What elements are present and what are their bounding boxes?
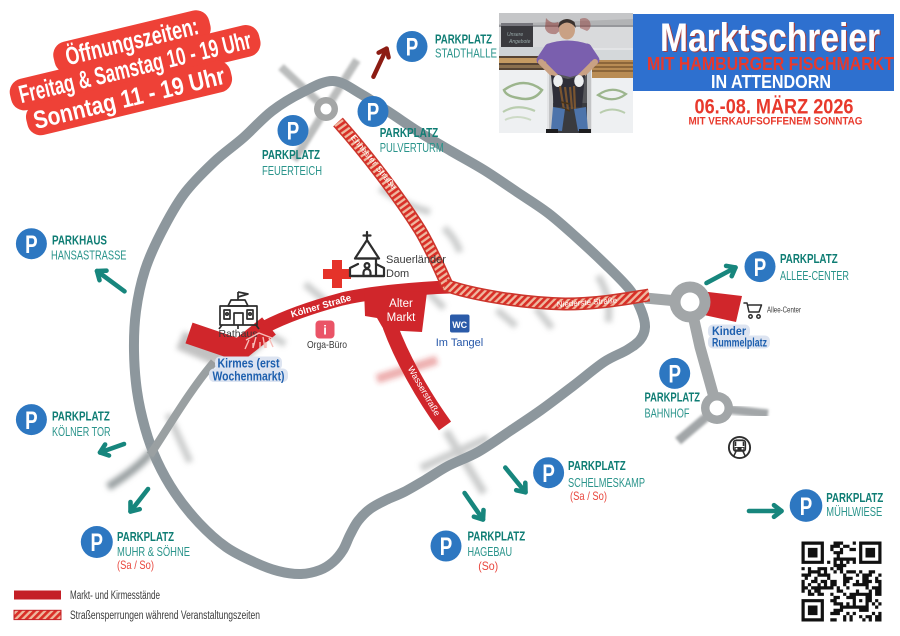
- svg-text:P: P: [25, 407, 38, 435]
- svg-text:KÖLNER TOR: KÖLNER TOR: [52, 425, 111, 439]
- svg-text:PARKPLATZ: PARKPLATZ: [645, 391, 701, 405]
- svg-text:PARKPLATZ: PARKPLATZ: [826, 491, 883, 505]
- svg-text:Straßensperrungen während Vera: Straßensperrungen während Veranstaltungs…: [70, 610, 260, 622]
- svg-text:P: P: [754, 254, 767, 282]
- svg-text:SCHELMESKAMP: SCHELMESKAMP: [568, 476, 645, 490]
- svg-text:PARKPLATZ: PARKPLATZ: [435, 32, 492, 46]
- svg-text:i: i: [323, 323, 327, 338]
- svg-text:PARKPLATZ: PARKPLATZ: [380, 126, 439, 140]
- svg-text:MIT HAMBURGER FISCHMARKT: MIT HAMBURGER FISCHMARKT: [647, 54, 894, 74]
- svg-text:Rathaus: Rathaus: [218, 328, 257, 340]
- svg-text:PARKPLATZ: PARKPLATZ: [117, 530, 174, 544]
- svg-text:P: P: [800, 493, 813, 521]
- svg-text:STADTHALLE: STADTHALLE: [435, 47, 497, 61]
- svg-text:P: P: [367, 99, 380, 127]
- svg-text:P: P: [25, 231, 38, 259]
- svg-text:FEUERTEICH: FEUERTEICH: [262, 164, 322, 178]
- svg-text:WC: WC: [452, 320, 467, 330]
- svg-text:MÜHLWIESE: MÜHLWIESE: [826, 505, 882, 519]
- svg-text:P: P: [668, 361, 681, 389]
- svg-text:(Sa / So): (Sa / So): [117, 558, 154, 572]
- svg-text:(So): (So): [478, 559, 498, 573]
- svg-text:Wochenmarkt): Wochenmarkt): [213, 370, 285, 384]
- svg-text:P: P: [91, 529, 104, 557]
- svg-text:Sauerländer: Sauerländer: [386, 254, 446, 266]
- svg-text:PARKHAUS: PARKHAUS: [52, 233, 107, 247]
- svg-text:P: P: [287, 118, 300, 146]
- svg-text:PULVERTURM: PULVERTURM: [380, 141, 444, 155]
- svg-text:Dom: Dom: [386, 268, 409, 280]
- svg-text:Angebote: Angebote: [508, 39, 531, 45]
- svg-text:MUHR & SÖHNE: MUHR & SÖHNE: [117, 545, 190, 559]
- svg-text:IN ATTENDORN: IN ATTENDORN: [711, 72, 831, 92]
- svg-text:PARKPLATZ: PARKPLATZ: [780, 252, 838, 266]
- svg-text:Allee-Center: Allee-Center: [767, 305, 801, 315]
- svg-text:P: P: [440, 533, 453, 561]
- svg-text:Orga-Büro: Orga-Büro: [307, 339, 347, 351]
- svg-text:Markt- und Kirmesstände: Markt- und Kirmesstände: [70, 590, 160, 602]
- svg-text:PARKPLATZ: PARKPLATZ: [568, 459, 626, 473]
- svg-text:PARKPLATZ: PARKPLATZ: [52, 410, 110, 424]
- svg-text:Unsere: Unsere: [507, 32, 523, 38]
- svg-text:PARKPLATZ: PARKPLATZ: [468, 530, 526, 544]
- svg-text:(Sa / So): (Sa / So): [570, 489, 607, 503]
- svg-text:Alter: Alter: [389, 298, 413, 310]
- svg-text:P: P: [406, 34, 419, 62]
- svg-text:Rummelplatz: Rummelplatz: [712, 336, 767, 350]
- svg-text:HANSASTRASSE: HANSASTRASSE: [51, 249, 127, 263]
- svg-text:BAHNHOF: BAHNHOF: [645, 407, 690, 421]
- svg-text:PARKPLATZ: PARKPLATZ: [262, 148, 320, 162]
- svg-text:P: P: [542, 460, 555, 488]
- svg-text:Wasserstraße: Wasserstraße: [406, 364, 443, 417]
- svg-text:Kirmes (erst: Kirmes (erst: [218, 357, 281, 371]
- svg-text:Im Tangel: Im Tangel: [436, 337, 484, 349]
- svg-text:ALLEE-CENTER: ALLEE-CENTER: [780, 269, 849, 283]
- svg-text:MIT VERKAUFSOFFENEM SONNTAG: MIT VERKAUFSOFFENEM SONNTAG: [689, 116, 863, 128]
- svg-text:Markt: Markt: [387, 312, 417, 324]
- svg-text:HAGEBAU: HAGEBAU: [468, 545, 513, 559]
